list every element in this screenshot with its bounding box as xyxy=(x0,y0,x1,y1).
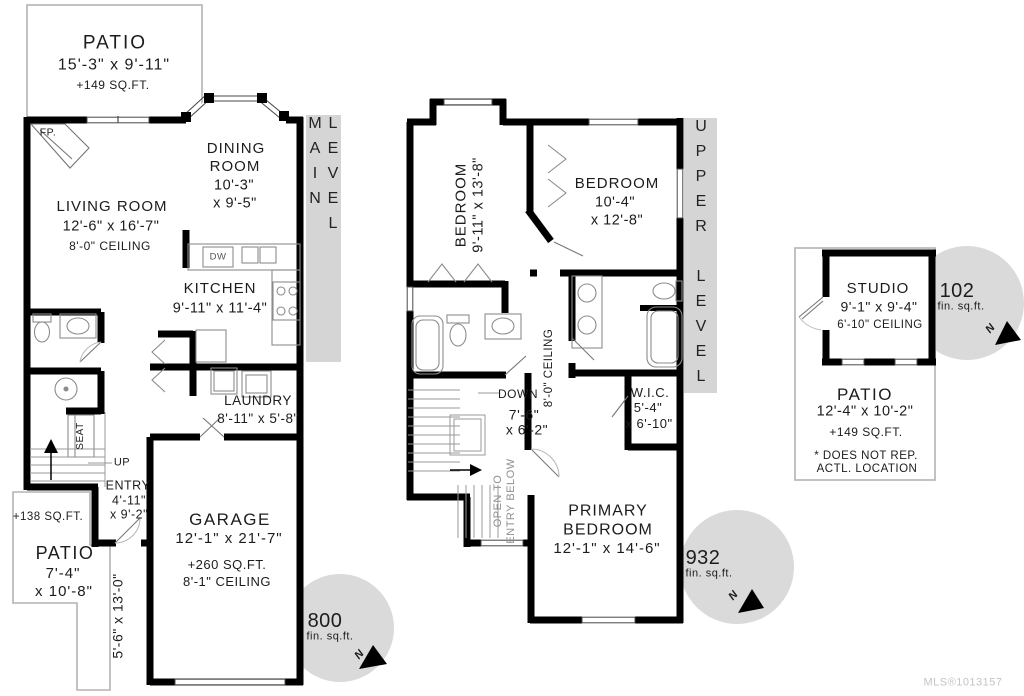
open-below-line-1: OPEN TO xyxy=(492,458,505,543)
kitchen-name: KITCHEN xyxy=(184,280,257,298)
floorplan-canvas xyxy=(0,0,1024,696)
studio-patio-name: PATIO xyxy=(837,385,893,405)
wic-dims-2: x 6'-10" xyxy=(625,416,672,432)
studio-dims: 9'-1" x 9'-4" xyxy=(840,299,917,316)
entry-name: ENTRY xyxy=(106,479,151,494)
stairs-dims-2: x 6'-2" xyxy=(506,422,548,439)
dishwasher-label: DW xyxy=(210,251,227,262)
garage-ceiling: 8'-1" CEILING xyxy=(183,574,271,590)
laundry-dims: 8'-11" x 5'-8" xyxy=(217,411,299,427)
primary-bedroom-dims: 12'-1" x 14'-6" xyxy=(553,540,660,558)
entry-dims-2: x 9'-2" xyxy=(110,508,148,523)
main-area-unit: fin. sq.ft. xyxy=(306,630,353,643)
fireplace-label: FP. xyxy=(40,127,56,140)
patio-top-area: +149 SQ.FT. xyxy=(76,78,149,92)
wic-name: W.I.C. xyxy=(631,385,669,401)
main-level-band-label: MAIN LEVEL xyxy=(306,115,342,362)
patio-lower-dims-1: 7'-4" xyxy=(46,565,81,583)
bedroom-right-dims-2: x 12'-8" xyxy=(591,212,643,229)
studio-note-2: ACTL. LOCATION xyxy=(817,463,918,477)
primary-bedroom-name-2: BEDROOM xyxy=(563,520,653,539)
living-room-name: LIVING ROOM xyxy=(56,198,167,216)
mls-number: MLS®1013157 xyxy=(923,676,1002,689)
seat-label: SEAT xyxy=(75,422,87,449)
studio-area-unit: fin. sq.ft. xyxy=(937,300,984,313)
dining-room-name-1: DINING xyxy=(207,140,266,158)
open-below-label: OPEN TO ENTRY BELOW xyxy=(492,458,518,543)
open-below-line-2: ENTRY BELOW xyxy=(505,458,518,543)
down-label: DOWN xyxy=(498,387,538,401)
patio-lower-area: +138 SQ.FT. xyxy=(13,511,83,525)
entry-dims-1: 4'-11" xyxy=(112,494,146,509)
bedroom-right-name: BEDROOM xyxy=(575,175,660,193)
garage-name: GARAGE xyxy=(189,510,271,530)
floorplan: MAIN LEVEL UPPER LEVEL PATIO 15'-3" x 9'… xyxy=(0,0,1024,696)
bedroom-left-label: BEDROOM 9'-11" x 13'-8" xyxy=(452,157,487,253)
garage-area: +260 SQ.FT. xyxy=(188,557,267,573)
garage-dims: 12'-1" x 21'-7" xyxy=(175,530,282,548)
studio-area-value: 102 xyxy=(940,279,975,303)
bedroom-right-dims-1: 10'-4" xyxy=(595,194,635,211)
studio-ceiling: 6'-10" CEILING xyxy=(837,319,923,333)
living-room-ceiling: 8'-0" CEILING xyxy=(69,239,151,253)
bedroom-left-name: BEDROOM xyxy=(452,157,470,253)
studio-patio-area: +149 SQ.FT. xyxy=(829,425,902,439)
dining-room-dims-2: x 9'-5" xyxy=(213,195,257,212)
main-level-band: MAIN LEVEL xyxy=(306,115,341,362)
kitchen-dims: 9'-11" x 11'-4" xyxy=(173,300,268,317)
upper-area-value: 932 xyxy=(686,546,721,570)
up-label: UP xyxy=(114,456,130,469)
dining-room-dims-1: 10'-3" xyxy=(214,177,254,194)
studio-note-1: * DOES NOT REP. xyxy=(814,450,918,464)
upper-level-band-label: UPPER LEVEL xyxy=(692,118,710,393)
patio-lower-dims-2: x 10'-8" xyxy=(35,583,93,601)
bedroom-left-dims: 9'-11" x 13'-8" xyxy=(470,157,487,253)
upper-ceiling-label: 8'-0" CEILING xyxy=(543,329,557,408)
patio-top-name: PATIO xyxy=(83,33,147,56)
main-area-value: 800 xyxy=(308,609,343,633)
patio-top-dims: 15'-3" x 9'-11" xyxy=(58,55,170,74)
patio-lower-name: PATIO xyxy=(36,543,95,565)
studio-patio-dims: 12'-4" x 10'-2" xyxy=(817,403,914,420)
primary-bedroom-name-1: PRIMARY xyxy=(568,501,648,520)
upper-level-band: UPPER LEVEL xyxy=(684,118,717,393)
upper-area-unit: fin. sq.ft. xyxy=(685,567,732,580)
patio-lower-side-dims: 5'-6" x 13'-0" xyxy=(110,573,127,658)
living-room-dims: 12'-6" x 16'-7" xyxy=(63,218,160,235)
laundry-name: LAUNDRY xyxy=(224,393,292,409)
wic-dims-1: 5'-4" xyxy=(634,400,662,416)
studio-name: STUDIO xyxy=(847,280,910,298)
dining-room-name-2: ROOM xyxy=(210,158,261,176)
